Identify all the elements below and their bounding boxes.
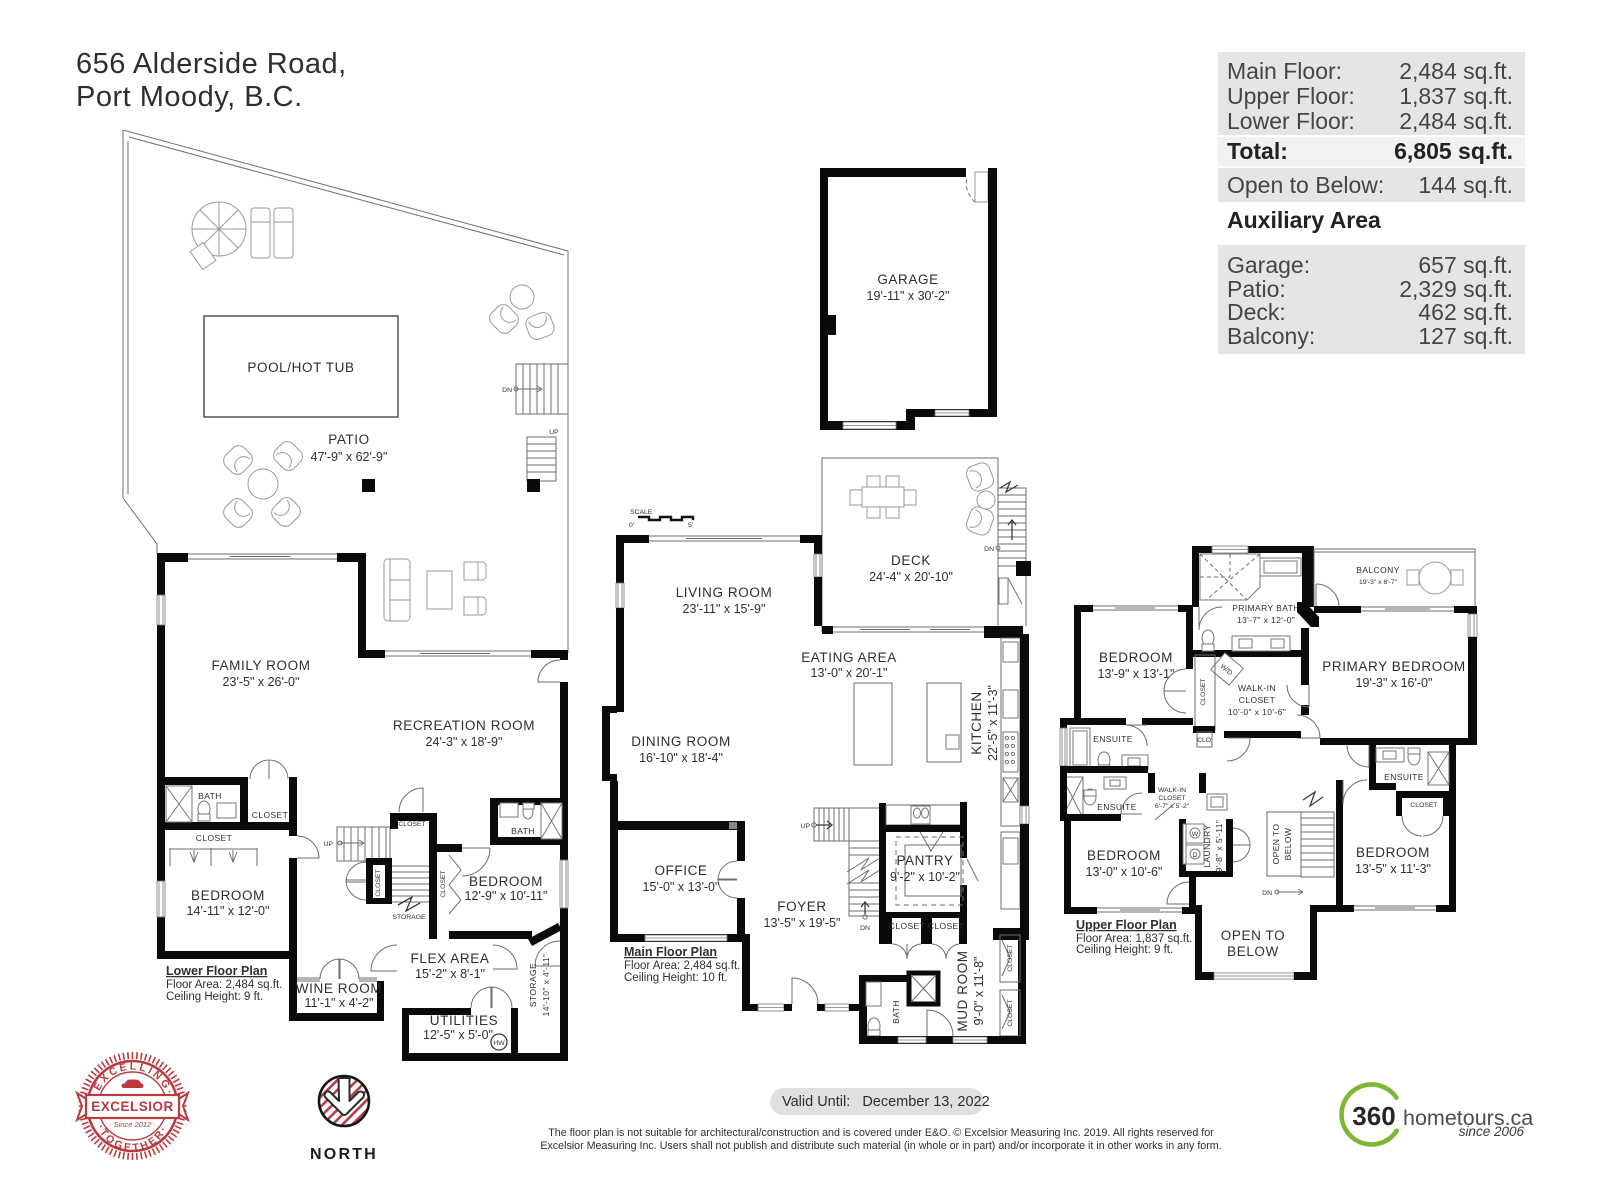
svg-text:SCALE: SCALE	[630, 509, 653, 516]
svg-text:Balcony:: Balcony:	[1227, 323, 1315, 349]
svg-text:127 sq.ft.: 127 sq.ft.	[1418, 323, 1513, 349]
svg-text:Upper Floor:: Upper Floor:	[1227, 83, 1355, 109]
svg-text:Total:: Total:	[1227, 138, 1288, 164]
svg-text:47'-9" x 62'-9": 47'-9" x 62'-9"	[311, 450, 388, 464]
svg-text:5': 5'	[688, 522, 693, 529]
svg-text:14'-10" x 4'-11": 14'-10" x 4'-11"	[541, 954, 551, 1017]
svg-text:DN: DN	[502, 387, 512, 394]
svg-text:15'-0" x 13'-0": 15'-0" x 13'-0"	[643, 880, 720, 894]
svg-text:1,837 sq.ft.: 1,837 sq.ft.	[1399, 83, 1513, 109]
svg-text:UP: UP	[801, 823, 811, 830]
svg-text:144 sq.ft.: 144 sq.ft.	[1418, 172, 1513, 198]
svg-text:CLOSET: CLOSET	[928, 921, 964, 931]
svg-text:since 2006: since 2006	[1459, 1124, 1525, 1139]
svg-text:9'-8" x 5'-11": 9'-8" x 5'-11"	[1214, 820, 1224, 873]
svg-text:22'-5" x 11'-3": 22'-5" x 11'-3"	[986, 685, 1000, 761]
svg-text:Ceiling Height: 9 ft.: Ceiling Height: 9 ft.	[1076, 944, 1173, 956]
svg-text:NORTH: NORTH	[310, 1146, 378, 1163]
svg-text:BELOW: BELOW	[1283, 828, 1293, 861]
svg-text:360: 360	[1352, 1101, 1395, 1131]
svg-text:LAUNDRY: LAUNDRY	[1202, 824, 1212, 867]
svg-text:13'-7" x 12'-0": 13'-7" x 12'-0"	[1237, 615, 1295, 625]
svg-text:6'-7" x 5'-2": 6'-7" x 5'-2"	[1155, 803, 1190, 810]
svg-text:OPEN TO: OPEN TO	[1221, 928, 1285, 943]
svg-text:CLOSET: CLOSET	[375, 869, 382, 896]
svg-text:BEDROOM: BEDROOM	[469, 874, 543, 889]
svg-text:CLOSET: CLOSET	[889, 921, 925, 931]
svg-text:KITCHEN: KITCHEN	[969, 691, 984, 754]
svg-text:FAMILY ROOM: FAMILY ROOM	[211, 658, 310, 673]
svg-text:Floor Area: 2,484 sq.ft.: Floor Area: 2,484 sq.ft.	[624, 960, 740, 972]
svg-text:UP: UP	[549, 429, 559, 436]
svg-text:656 Alderside Road,: 656 Alderside Road,	[76, 48, 347, 80]
svg-text:CLOSET: CLOSET	[196, 833, 232, 843]
svg-text:BEDROOM: BEDROOM	[1356, 845, 1430, 860]
svg-text:24'-4" x 20'-10": 24'-4" x 20'-10"	[869, 570, 953, 584]
svg-text:13'-5" x 19'-5": 13'-5" x 19'-5"	[764, 916, 841, 930]
svg-text:CLOSET: CLOSET	[1239, 695, 1275, 705]
svg-text:PATIO: PATIO	[328, 432, 370, 447]
svg-text:PRIMARY BEDROOM: PRIMARY BEDROOM	[1322, 659, 1466, 674]
svg-text:9'-0" x 11'-8": 9'-0" x 11'-8"	[972, 956, 986, 1025]
svg-text:ENSUITE: ENSUITE	[1384, 772, 1424, 782]
svg-text:Lower Floor:: Lower Floor:	[1227, 108, 1355, 134]
svg-text:13'-9" x 13'-1": 13'-9" x 13'-1"	[1098, 667, 1175, 681]
svg-text:MUD ROOM: MUD ROOM	[955, 950, 970, 1031]
svg-text:Open to Below:: Open to Below:	[1227, 172, 1384, 198]
svg-text:Auxiliary Area: Auxiliary Area	[1227, 207, 1381, 233]
svg-text:24'-3" x 18'-9": 24'-3" x 18'-9"	[426, 735, 503, 749]
svg-text:WINE ROOM: WINE ROOM	[296, 981, 382, 996]
svg-text:W: W	[1192, 831, 1199, 838]
svg-text:LIVING ROOM: LIVING ROOM	[676, 585, 773, 600]
svg-text:Upper Floor Plan: Upper Floor Plan	[1076, 918, 1177, 932]
svg-text:BEDROOM: BEDROOM	[1099, 650, 1173, 665]
svg-text:The floor plan is not suitable: The floor plan is not suitable for archi…	[548, 1127, 1214, 1139]
svg-text:15'-2" x 8'-1": 15'-2" x 8'-1"	[415, 967, 485, 981]
svg-text:OPEN TO: OPEN TO	[1271, 824, 1281, 865]
svg-text:6,805 sq.ft.: 6,805 sq.ft.	[1394, 138, 1513, 164]
svg-text:13'-0" x 10'-6": 13'-0" x 10'-6"	[1086, 865, 1163, 879]
svg-text:CLOSET: CLOSET	[1410, 802, 1437, 809]
svg-text:Deck:: Deck:	[1227, 299, 1286, 325]
svg-text:· Since 2012 ·: · Since 2012 ·	[109, 1120, 156, 1129]
svg-text:Floor Area: 2,484 sq.ft.: Floor Area: 2,484 sq.ft.	[166, 979, 282, 991]
svg-text:19'-3" x 6'-7": 19'-3" x 6'-7"	[1359, 579, 1398, 586]
svg-text:0': 0'	[629, 522, 634, 529]
svg-text:UTILITIES: UTILITIES	[430, 1013, 498, 1028]
svg-text:Ceiling Height: 9 ft.: Ceiling Height: 9 ft.	[166, 991, 263, 1003]
svg-text:14'-11" x 12'-0": 14'-11" x 12'-0"	[187, 904, 270, 918]
svg-text:Main Floor:: Main Floor:	[1227, 58, 1342, 84]
svg-text:DECK: DECK	[891, 553, 931, 568]
svg-text:13'-0" x 20'-1": 13'-0" x 20'-1"	[811, 666, 888, 680]
svg-text:BELOW: BELOW	[1227, 944, 1279, 959]
svg-text:BATH: BATH	[198, 791, 222, 801]
svg-text:Main Floor Plan: Main Floor Plan	[624, 945, 717, 959]
svg-text:CLOSET: CLOSET	[1200, 678, 1207, 705]
svg-text:CLOSET: CLOSET	[1007, 999, 1014, 1026]
svg-text:Valid Until: December 13, 20: Valid Until: December 13, 2022	[782, 1094, 990, 1110]
svg-text:16'-10" x 18'-4": 16'-10" x 18'-4"	[639, 751, 723, 765]
svg-text:2,484 sq.ft.: 2,484 sq.ft.	[1399, 58, 1513, 84]
svg-text:Lower Floor Plan: Lower Floor Plan	[166, 964, 267, 978]
svg-text:Excelsior Measuring Inc. Users: Excelsior Measuring Inc. Users shall not…	[540, 1140, 1221, 1152]
svg-text:19'-3" x 16'-0": 19'-3" x 16'-0"	[1356, 676, 1433, 690]
svg-text:OFFICE: OFFICE	[654, 863, 707, 878]
svg-text:BALCONY: BALCONY	[1356, 565, 1399, 575]
svg-text:HW: HW	[493, 1040, 505, 1047]
svg-text:ENSUITE: ENSUITE	[1097, 802, 1137, 812]
svg-text:12'-5" x 5'-0": 12'-5" x 5'-0"	[423, 1028, 493, 1042]
svg-text:2,484 sq.ft.: 2,484 sq.ft.	[1399, 108, 1513, 134]
svg-text:EATING AREA: EATING AREA	[801, 650, 897, 665]
svg-text:POOL/HOT TUB: POOL/HOT TUB	[247, 360, 354, 375]
svg-text:Port Moody, B.C.: Port Moody, B.C.	[76, 81, 303, 113]
svg-text:Garage:: Garage:	[1227, 252, 1310, 278]
svg-text:BATH: BATH	[511, 826, 535, 836]
svg-text:RECREATION ROOM: RECREATION ROOM	[393, 718, 535, 733]
svg-text:DN: DN	[984, 546, 994, 553]
svg-text:CLOSET: CLOSET	[440, 870, 447, 897]
svg-text:23'-5" x 26'-0": 23'-5" x 26'-0"	[223, 675, 300, 689]
svg-text:GARAGE: GARAGE	[877, 272, 938, 287]
svg-text:D: D	[1193, 852, 1198, 859]
svg-text:462 sq.ft.: 462 sq.ft.	[1418, 299, 1513, 325]
svg-text:19'-11" x 30'-2": 19'-11" x 30'-2"	[867, 289, 950, 303]
svg-text:CLO.: CLO.	[1197, 737, 1213, 744]
svg-text:WALK-IN: WALK-IN	[1158, 787, 1186, 794]
svg-text:WALK-IN: WALK-IN	[1238, 683, 1276, 693]
svg-text:DN: DN	[860, 925, 870, 932]
svg-text:UP: UP	[324, 841, 334, 848]
svg-text:PANTRY: PANTRY	[896, 853, 953, 868]
svg-text:10'-0" x 10'-6": 10'-0" x 10'-6"	[1228, 707, 1286, 717]
svg-text:DN: DN	[1262, 890, 1272, 897]
svg-text:CLOSET: CLOSET	[252, 810, 288, 820]
svg-text:23'-11" x 15'-9": 23'-11" x 15'-9"	[683, 602, 766, 616]
svg-text:12'-9" x 10'-11": 12'-9" x 10'-11"	[465, 889, 548, 903]
svg-text:657 sq.ft.: 657 sq.ft.	[1418, 252, 1513, 278]
svg-text:BEDROOM: BEDROOM	[1087, 848, 1161, 863]
svg-text:DINING ROOM: DINING ROOM	[631, 734, 731, 749]
svg-text:CLOSET: CLOSET	[398, 821, 425, 828]
svg-text:CLOSET: CLOSET	[1158, 795, 1185, 802]
svg-text:11'-1" x 4'-2": 11'-1" x 4'-2"	[304, 996, 373, 1010]
svg-text:EXCELSIOR: EXCELSIOR	[91, 1099, 174, 1114]
svg-text:BEDROOM: BEDROOM	[191, 888, 265, 903]
svg-text:9'-2" x 10'-2": 9'-2" x 10'-2"	[890, 870, 960, 884]
svg-text:Ceiling Height: 10 ft.: Ceiling Height: 10 ft.	[624, 972, 728, 984]
svg-text:PRIMARY BATH: PRIMARY BATH	[1232, 603, 1300, 613]
svg-text:ENSUITE: ENSUITE	[1093, 734, 1133, 744]
svg-text:FLEX AREA: FLEX AREA	[411, 951, 490, 966]
svg-text:STORAGE: STORAGE	[392, 914, 426, 921]
svg-text:STORAGE: STORAGE	[528, 963, 538, 1007]
svg-text:BATH: BATH	[891, 1000, 901, 1024]
svg-text:CLOSET: CLOSET	[1007, 944, 1014, 971]
svg-text:FOYER: FOYER	[777, 899, 827, 914]
svg-text:13'-5" x 11'-3": 13'-5" x 11'-3"	[1355, 862, 1431, 876]
